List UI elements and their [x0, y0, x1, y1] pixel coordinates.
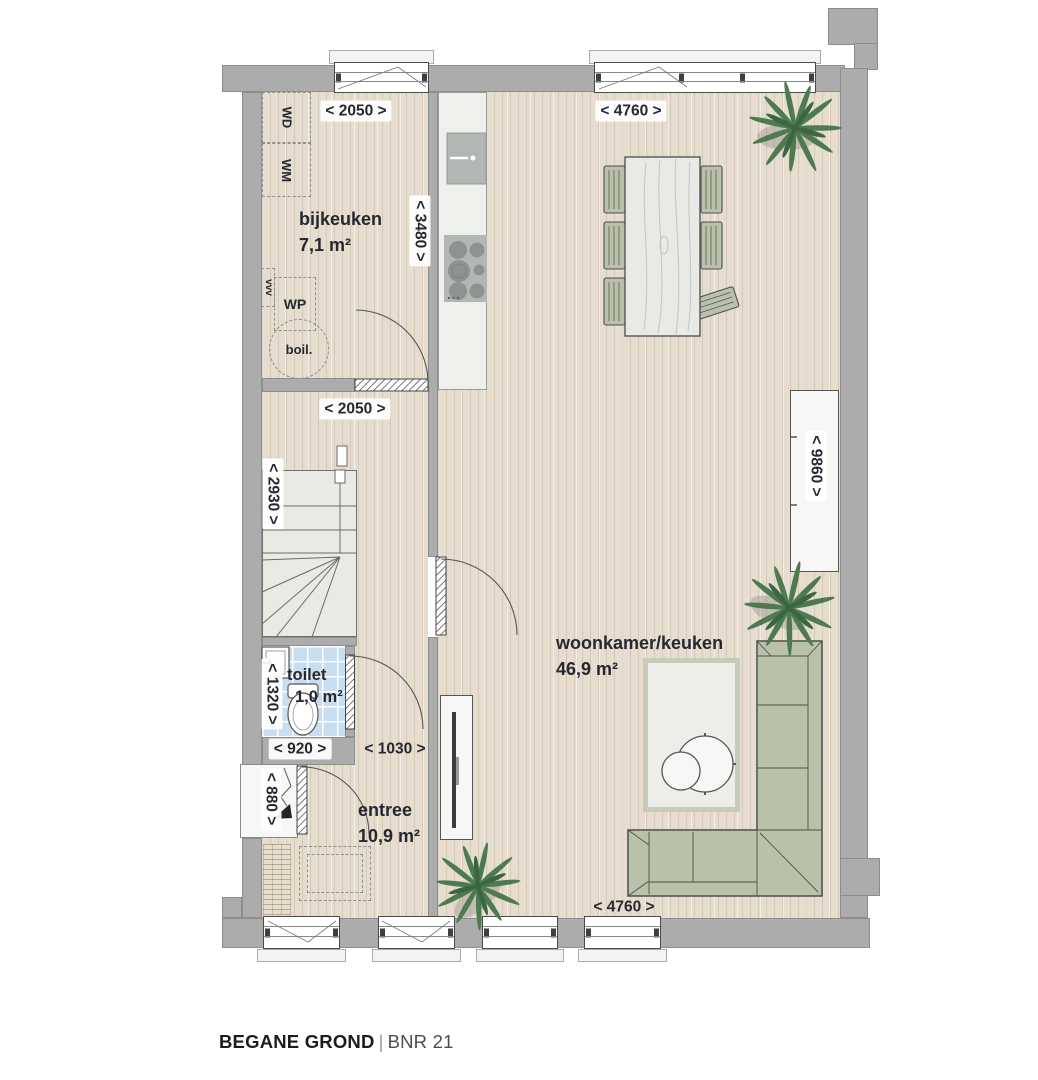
window-bottom-living-3: [584, 916, 661, 949]
dim-woonkamer-bottom-width: < 4760 >: [588, 897, 659, 918]
room-label-bijkeuken: bijkeuken 7,1 m²: [299, 206, 382, 258]
wall-mid-lower: [428, 637, 438, 918]
plan-title: BEGANE GROND|BNR 21: [219, 1031, 454, 1053]
boiler-label: boil.: [286, 342, 313, 357]
wall-left-foot: [222, 897, 242, 918]
vent-marker: vvv: [261, 268, 275, 307]
room-label-entree: entree 10,9 m²: [358, 797, 420, 849]
doormat-inner: [307, 854, 363, 893]
wall-left-upper: [242, 92, 262, 765]
wall-chimney: [828, 8, 878, 45]
wall-bijkeuken-hall: [262, 378, 355, 392]
dim-room-depth: < 9860 >: [806, 430, 827, 501]
dim-woonkamer-top-width: < 4760 >: [595, 101, 666, 122]
floor-living-kitchen: [438, 92, 840, 918]
wall-left-lower: [242, 838, 262, 918]
title-separator: |: [375, 1031, 388, 1052]
wd-label: WD: [279, 107, 294, 129]
wall-mid-upper: [428, 92, 438, 557]
window-sill: [578, 949, 667, 962]
wall-stairs-toilet: [262, 637, 357, 646]
washer-dryer-slot: WD: [262, 92, 311, 143]
wall-chimney-column: [854, 43, 878, 70]
window-sill: [476, 949, 564, 962]
dim-toilet-depth: < 1320 >: [262, 658, 283, 729]
window-bottom-living-2: [482, 916, 558, 949]
wm-label: WM: [279, 158, 294, 181]
washing-machine-slot: WM: [262, 143, 311, 197]
window-sill: [257, 949, 346, 962]
wall-right: [840, 68, 868, 918]
window-bottom-entree: [263, 916, 340, 949]
meter-cupboard: [263, 844, 291, 915]
vent-label: vvv: [263, 279, 274, 296]
floorplan: WD WM WP vvv boil.: [0, 0, 1038, 1080]
boiler: boil.: [269, 319, 329, 379]
dim-entrance-width: < 880 >: [261, 768, 282, 831]
wall-toilet-right-b: [345, 726, 355, 737]
room-label-woonkamer: woonkamer/keuken 46,9 m²: [556, 630, 723, 682]
window-top-living: [594, 62, 816, 93]
floor-name: BEGANE GROND: [219, 1031, 375, 1052]
dim-toilet-width: < 920 >: [269, 739, 332, 760]
wall-toilet-right-a: [345, 646, 355, 658]
tv-cabinet: [440, 695, 473, 840]
dim-stairs-depth: < 2930 >: [263, 458, 284, 529]
unit-number: BNR 21: [388, 1031, 454, 1052]
window-top-bijkeuken: [334, 62, 429, 93]
wall-right-bump: [840, 858, 880, 896]
kitchen-counter: [438, 92, 487, 390]
dim-hall-width: < 2050 >: [319, 399, 390, 420]
dim-bijkeuken-width: < 2050 >: [320, 101, 391, 122]
room-label-toilet: toilet 1,0 m²: [287, 664, 343, 708]
window-sill: [372, 949, 461, 962]
window-bottom-living-1: [378, 916, 455, 949]
dim-kitchen-depth: < 3480 >: [410, 195, 431, 266]
wp-label: WP: [284, 296, 307, 312]
dim-hall-passage: < 1030 >: [359, 739, 430, 760]
